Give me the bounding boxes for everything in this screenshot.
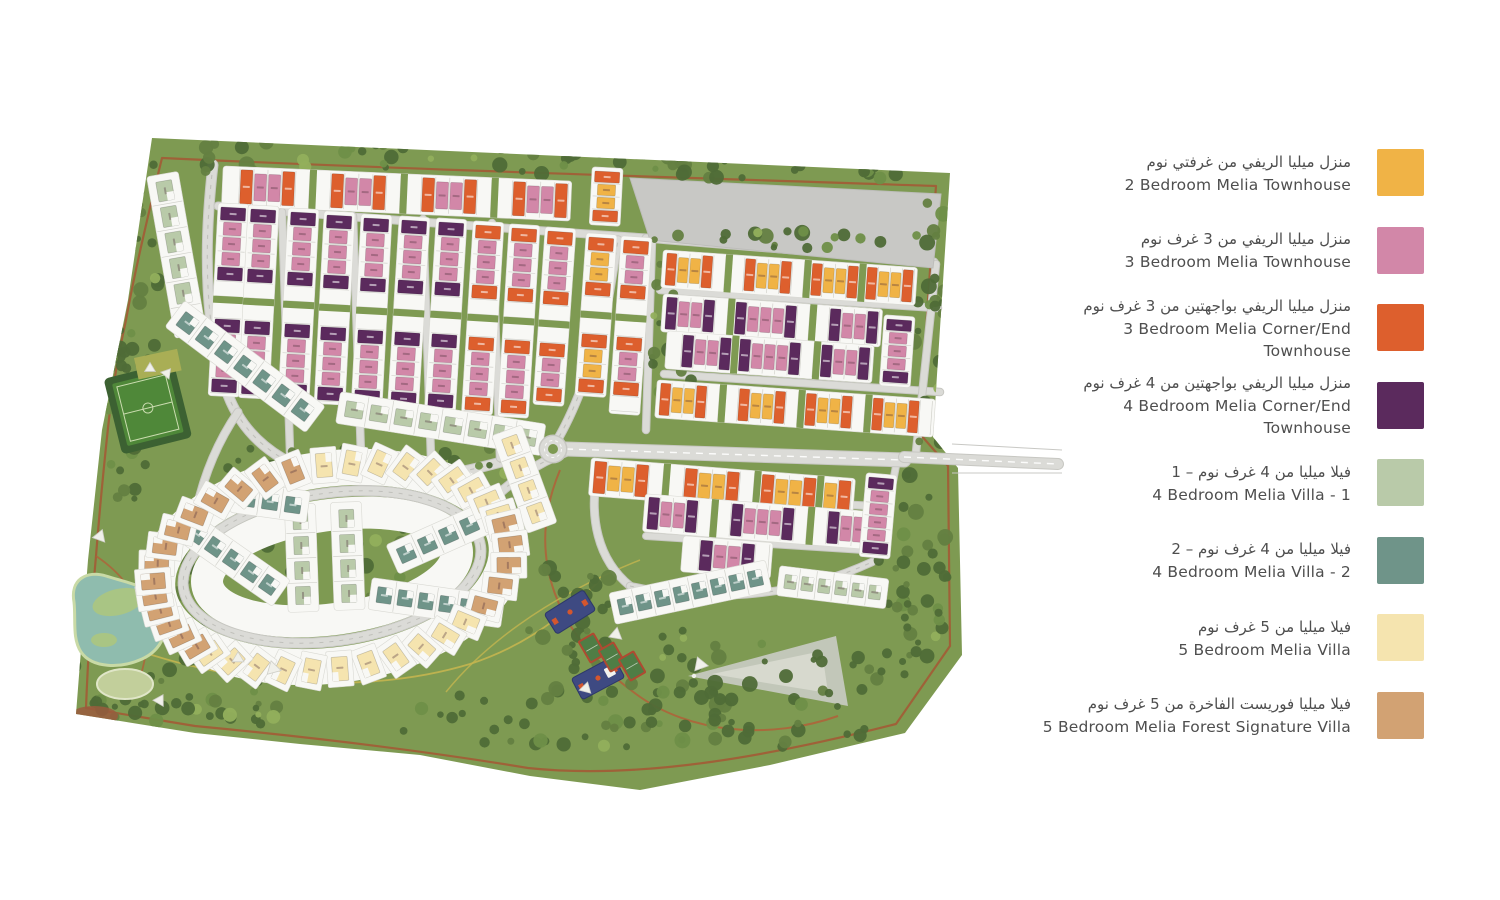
legend: منزل ميليا الريفي من غرفتي نوم 2 Bedroom… bbox=[1042, 134, 1424, 754]
legend-label-en: 2 Bedroom Melia Townhouse bbox=[1125, 174, 1351, 196]
legend-label-en: 5 Bedroom Melia Villa bbox=[1178, 639, 1351, 661]
legend-item-5br-villa: فيلا ميليا من 5 غرف نوم 5 Bedroom Melia … bbox=[1042, 599, 1424, 677]
legend-item-3br-townhouse: منزل ميليا الريفي من 3 غرف نوم 3 Bedroom… bbox=[1042, 212, 1424, 290]
legend-label-ar: فيلا ميليا من 4 غرف نوم – 2 bbox=[1152, 537, 1351, 561]
legend-swatch-4br-villa-2 bbox=[1377, 537, 1424, 584]
legend-label-ar: منزل ميليا الريفي من 3 غرف نوم bbox=[1125, 227, 1351, 251]
legend-swatch-3br-corner-townhouse bbox=[1377, 304, 1424, 351]
legend-item-4br-villa-2: فيلا ميليا من 4 غرف نوم – 2 4 Bedroom Me… bbox=[1042, 522, 1424, 600]
legend-label-en: 3 Bedroom Melia Townhouse bbox=[1125, 251, 1351, 273]
legend-label-ar: منزل ميليا الريفي بواجهتين من 4 غرف نوم bbox=[1042, 371, 1351, 395]
legend-label-en: 5 Bedroom Melia Forest Signature Villa bbox=[1043, 716, 1351, 738]
legend-swatch-5br-forest-signature-villa bbox=[1377, 692, 1424, 739]
legend-swatch-5br-villa bbox=[1377, 614, 1424, 661]
legend-swatch-3br-townhouse bbox=[1377, 227, 1424, 274]
legend-label-en: 4 Bedroom Melia Villa - 2 bbox=[1152, 561, 1351, 583]
legend-item-3br-corner-townhouse: منزل ميليا الريفي بواجهتين من 3 غرف نوم … bbox=[1042, 289, 1424, 367]
legend-label-en: 4 Bedroom Melia Corner/End Townhouse bbox=[1042, 395, 1351, 439]
legend-swatch-4br-corner-townhouse bbox=[1377, 382, 1424, 429]
legend-item-5br-forest-signature-villa: فيلا ميليا فوريست الفاخرة من 5 غرف نوم 5… bbox=[1042, 677, 1424, 755]
legend-label-ar: منزل ميليا الريفي بواجهتين من 3 غرف نوم bbox=[1042, 294, 1351, 318]
legend-label-ar: منزل ميليا الريفي من غرفتي نوم bbox=[1125, 150, 1351, 174]
legend-swatch-4br-villa-1 bbox=[1377, 459, 1424, 506]
legend-item-4br-villa-1: فيلا ميليا من 4 غرف نوم – 1 4 Bedroom Me… bbox=[1042, 444, 1424, 522]
legend-label-ar: فيلا ميليا من 4 غرف نوم – 1 bbox=[1152, 460, 1351, 484]
page: منزل ميليا الريفي من غرفتي نوم 2 Bedroom… bbox=[0, 0, 1500, 900]
legend-item-2br-townhouse: منزل ميليا الريفي من غرفتي نوم 2 Bedroom… bbox=[1042, 134, 1424, 212]
legend-swatch-2br-townhouse bbox=[1377, 149, 1424, 196]
legend-label-en: 3 Bedroom Melia Corner/End Townhouse bbox=[1042, 318, 1351, 362]
legend-item-4br-corner-townhouse: منزل ميليا الريفي بواجهتين من 4 غرف نوم … bbox=[1042, 367, 1424, 445]
legend-label-ar: فيلا ميليا من 5 غرف نوم bbox=[1178, 615, 1351, 639]
legend-label-ar: فيلا ميليا فوريست الفاخرة من 5 غرف نوم bbox=[1043, 692, 1351, 716]
legend-label-en: 4 Bedroom Melia Villa - 1 bbox=[1152, 484, 1351, 506]
